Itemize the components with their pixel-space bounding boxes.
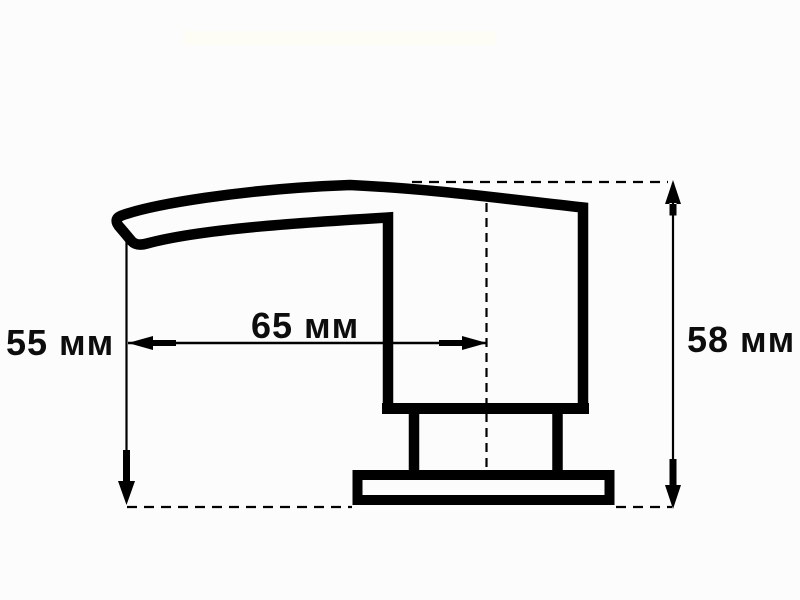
svg-text:65 мм: 65 мм bbox=[251, 305, 359, 346]
svg-text:55 мм: 55 мм bbox=[6, 322, 114, 363]
svg-text:58 мм: 58 мм bbox=[687, 319, 795, 360]
